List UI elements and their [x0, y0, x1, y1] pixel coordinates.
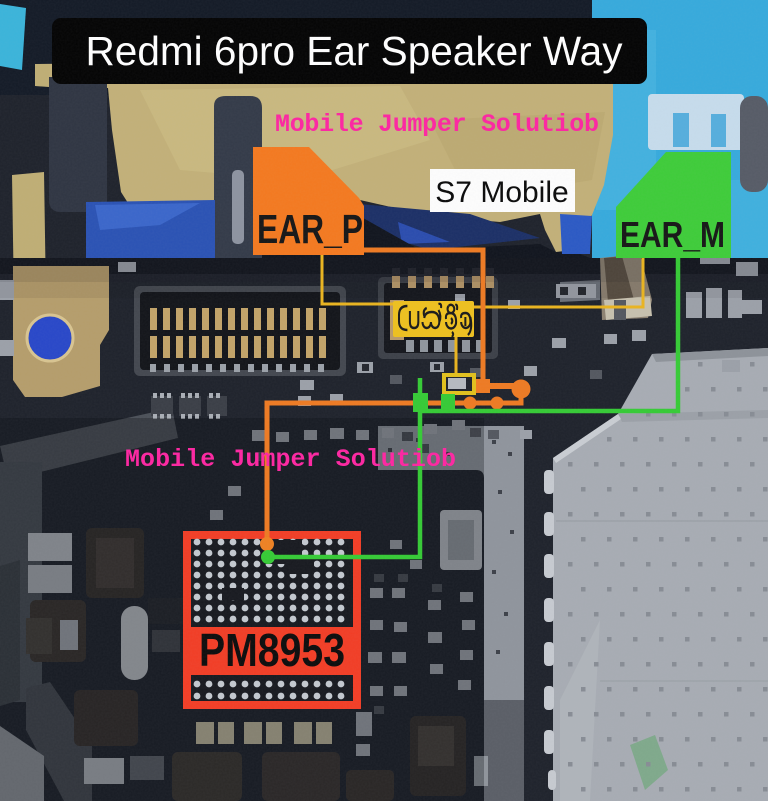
svg-text:Mobile Jumper Solutiob: Mobile Jumper Solutiob: [125, 445, 456, 474]
svg-text:Mobile Jumper Solutiob: Mobile Jumper Solutiob: [275, 110, 599, 139]
